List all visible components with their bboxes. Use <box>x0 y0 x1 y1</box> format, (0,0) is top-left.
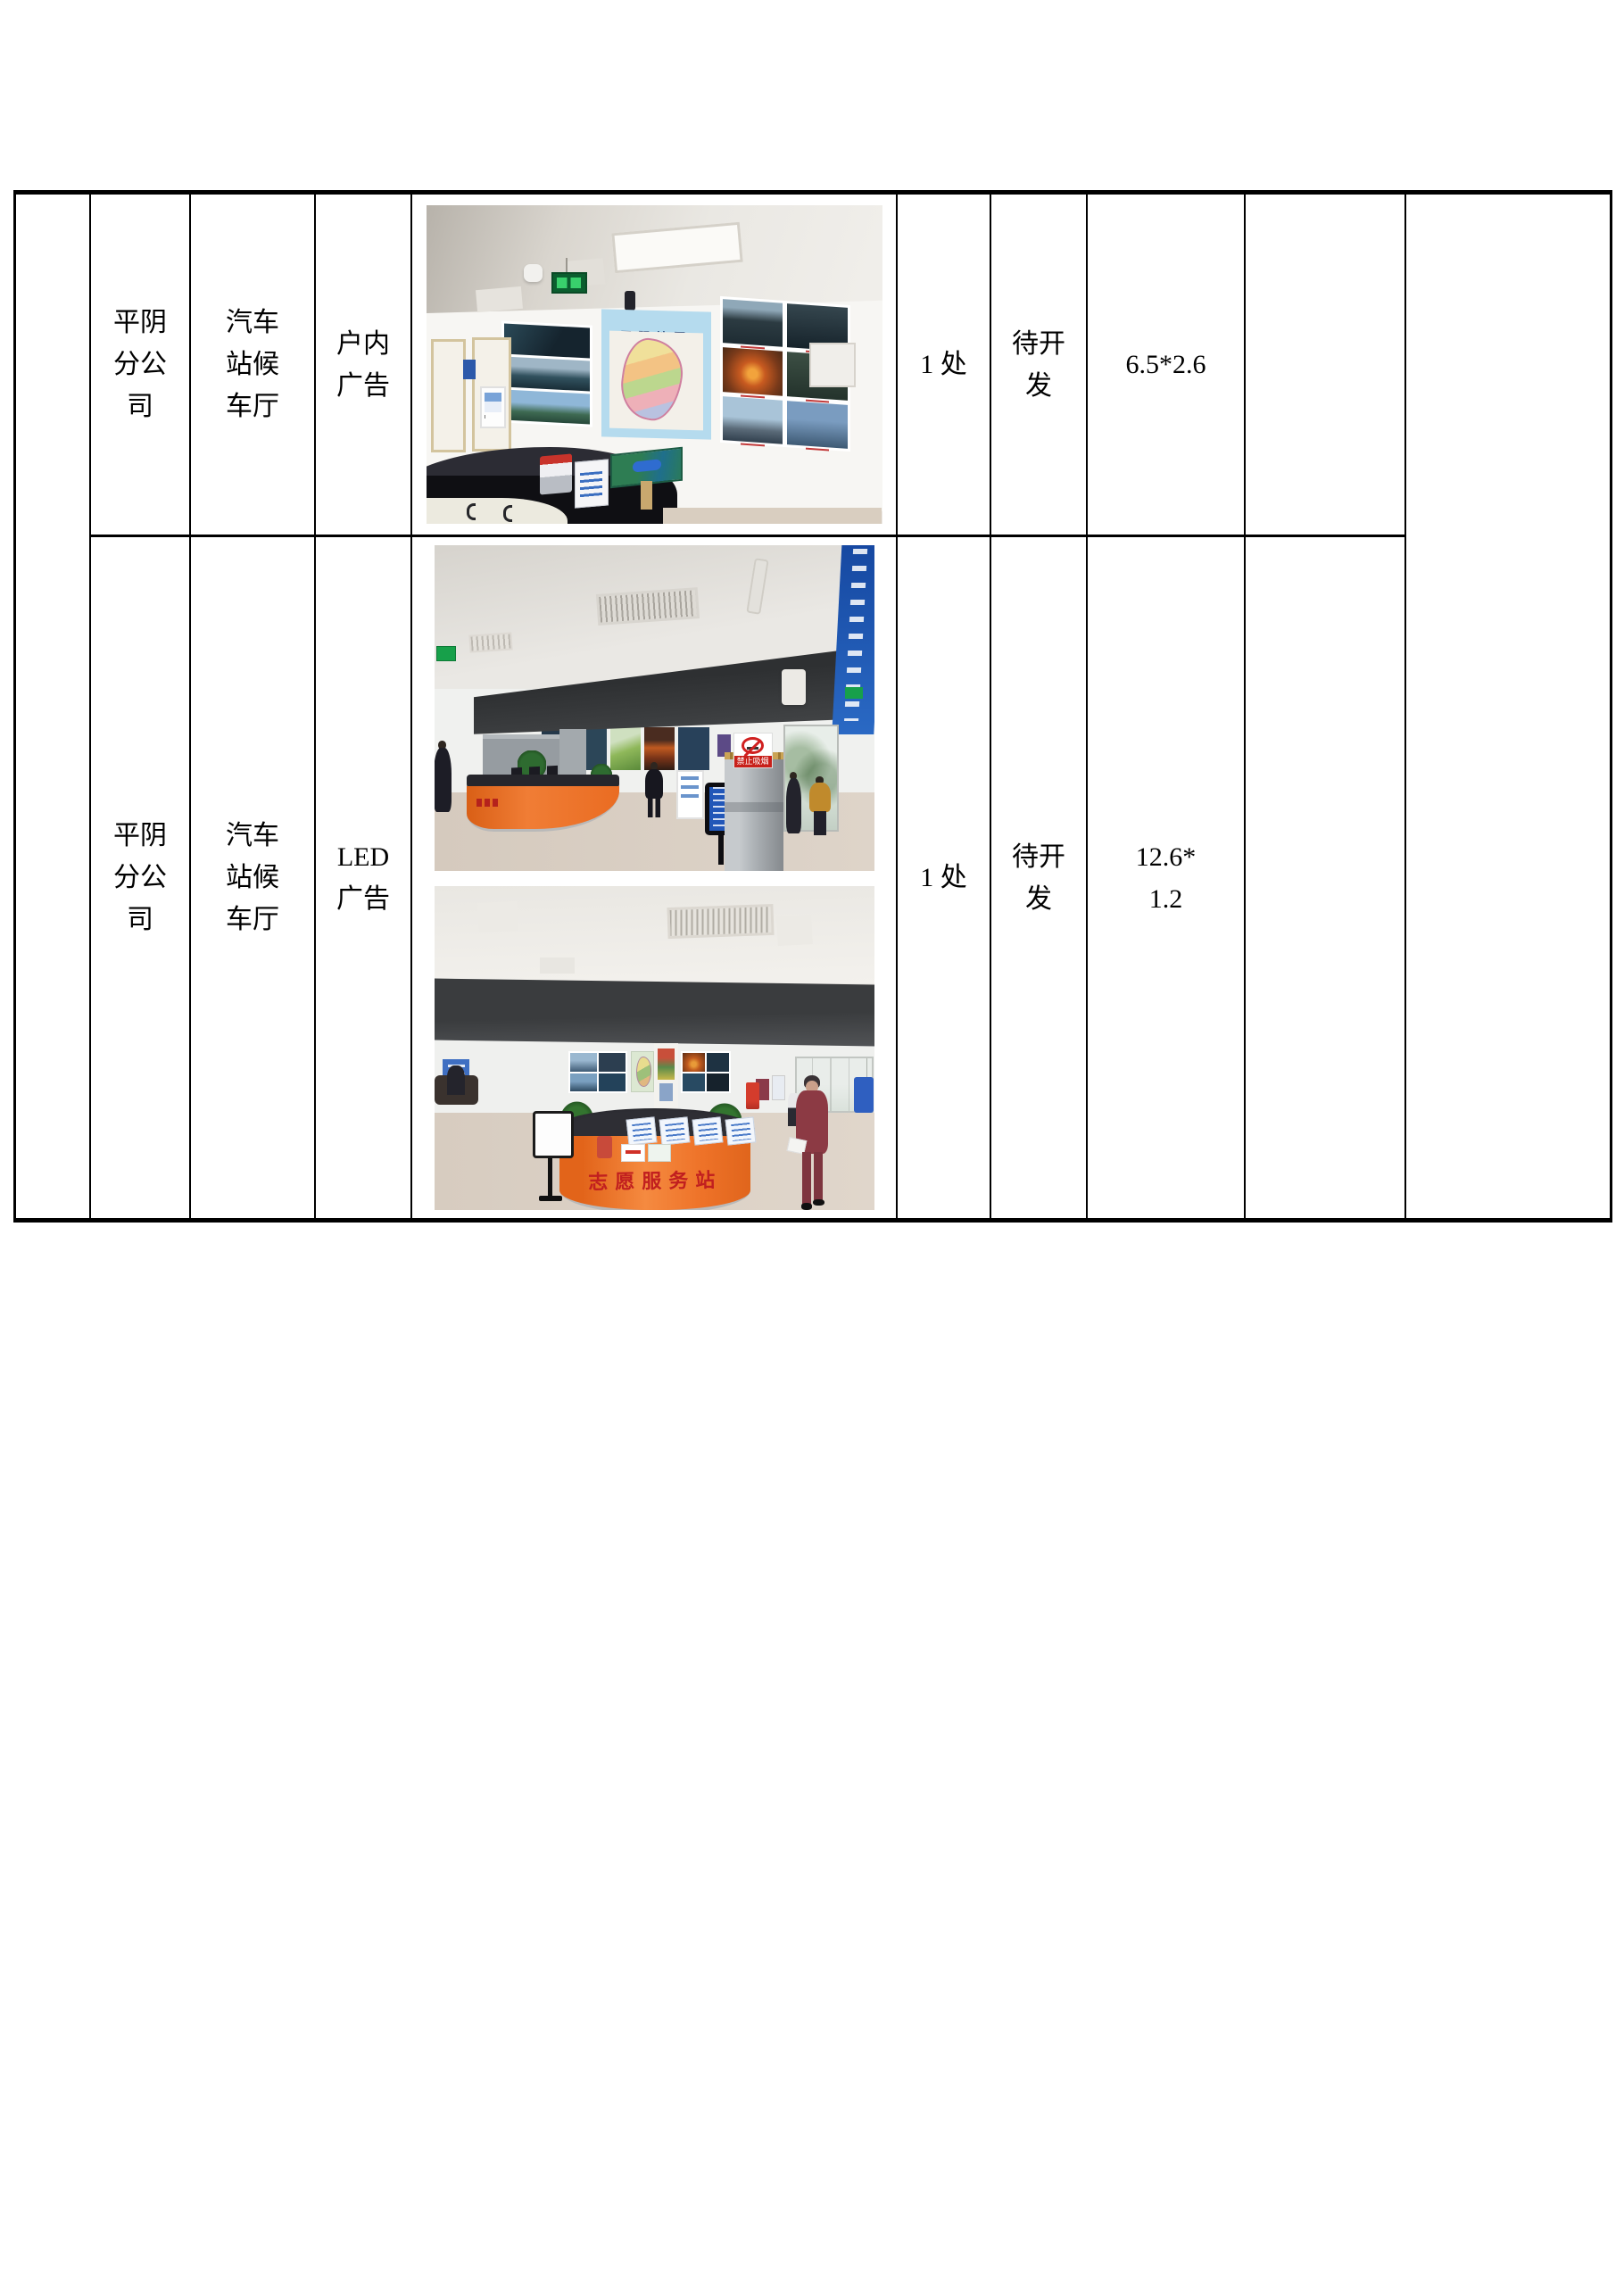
speaker-icon <box>524 264 542 282</box>
ceiling-panel <box>776 915 813 946</box>
exit-sign-icon <box>436 646 456 661</box>
person-walking <box>643 762 666 817</box>
photo-led-ad-hall-a: 禁止吸烟 <box>435 545 874 871</box>
poster-text-lines <box>681 776 699 801</box>
wall-photo-cluster-left <box>568 1051 628 1093</box>
cell-company-row2: 平阴 分公 司 <box>91 537 191 1218</box>
cell-adtype-row1: 户内 广告 <box>316 195 412 537</box>
county-map-shape <box>617 335 688 425</box>
kiosk-leg <box>641 481 652 510</box>
cell-company-row1: 平阴 分公 司 <box>91 195 191 537</box>
card-red-text <box>626 1150 641 1155</box>
cell-adtype-row2: LED 广告 <box>316 537 412 1218</box>
counter-card <box>648 1144 672 1162</box>
leaflet-box <box>575 459 609 508</box>
volunteer-counter-label: 志愿服务站 <box>559 1158 751 1204</box>
menu-board-base <box>539 1196 562 1202</box>
photo-indoor-ad-waiting-hall: 平阴地图 <box>427 205 882 524</box>
leaflet-text <box>580 471 602 498</box>
cell-count-row2: 1 处 <box>898 537 991 1218</box>
wall-photo-cluster-right <box>681 1051 732 1093</box>
wall-map-poster <box>631 1051 654 1092</box>
cell-status-row2: 待开 发 <box>991 537 1088 1218</box>
photo-collage-left <box>501 320 592 427</box>
ticket-device <box>540 454 572 495</box>
ad-resources-table: 平阴 分公 司 汽车 站候 车厅 户内 广告 平阴地图 <box>13 190 1612 1223</box>
ceiling-panel <box>540 957 575 974</box>
floor <box>663 508 882 524</box>
ceiling-panel <box>477 901 518 932</box>
pillar-poster <box>658 1049 675 1080</box>
person-yellow-coat <box>808 776 833 835</box>
poster-stand <box>480 386 507 428</box>
ceiling-vent <box>667 904 775 939</box>
cell-photo-row1: 平阴地图 <box>412 195 898 537</box>
map-paper <box>609 331 703 430</box>
map-shape <box>636 1057 651 1086</box>
cell-status-row1: 待开 发 <box>991 195 1088 537</box>
counter-red-label <box>476 799 501 807</box>
blue-trash-bin <box>854 1077 874 1113</box>
menu-board <box>533 1111 573 1158</box>
ceiling-vent <box>468 632 513 653</box>
wall-poster-white <box>772 1075 785 1099</box>
no-smoking-label: 禁止吸烟 <box>734 756 772 767</box>
cabinet-handle <box>503 505 512 522</box>
door <box>431 339 466 452</box>
person-right <box>783 772 803 833</box>
kiosk-pole <box>718 835 724 865</box>
map-poster: 平阴地图 <box>601 309 711 439</box>
exit-sign-icon <box>845 687 863 699</box>
cell-location-row1: 汽车 站候 车厅 <box>191 195 316 537</box>
red-box <box>597 1136 612 1158</box>
cell-photo-row2: 禁止吸烟 <box>412 537 898 1218</box>
menu-board-pole <box>548 1158 552 1198</box>
cell-note-row2 <box>1246 537 1406 1218</box>
woman-maroon-outfit <box>791 1075 834 1210</box>
wall-ac-unit <box>782 669 806 705</box>
counter-card <box>621 1144 645 1162</box>
poster-stand-graphic <box>485 393 501 412</box>
wall-vent <box>809 343 857 387</box>
cell-size-row1: 6.5*2.6 <box>1088 195 1246 537</box>
pillar-band <box>725 802 784 812</box>
no-smoking-sign: 禁止吸烟 <box>733 733 773 768</box>
exit-glyph <box>557 278 581 289</box>
exit-sign-icon <box>551 272 587 294</box>
red-trash-bin <box>746 1082 760 1110</box>
cell-size-row2: 12.6* 1.2 <box>1088 537 1246 1218</box>
cell-note-row1 <box>1246 195 1406 537</box>
wall-sign-blue <box>463 360 475 378</box>
poster-stand <box>676 770 704 819</box>
camera-icon <box>625 291 634 310</box>
pillar <box>725 752 784 871</box>
table-cell-blank-left <box>16 195 91 1218</box>
cell-location-row2: 汽车 站候 车厅 <box>191 537 316 1218</box>
poster-stand-legs <box>485 415 485 419</box>
pillar-poster <box>659 1083 673 1100</box>
table-cell-blank-right <box>1406 195 1610 1218</box>
no-smoking-icon <box>742 737 764 754</box>
cell-count-row1: 1 处 <box>898 195 991 537</box>
person-left <box>435 741 454 812</box>
kiosk-sign <box>633 460 661 473</box>
brochure-racks <box>627 1118 755 1144</box>
photo-led-ad-hall-b: 志愿服务站 <box>435 886 874 1210</box>
cabinet-handle <box>467 503 476 520</box>
ceiling-panel <box>476 286 523 312</box>
person-seated <box>447 1065 465 1095</box>
led-screen-soffit <box>435 979 874 1047</box>
